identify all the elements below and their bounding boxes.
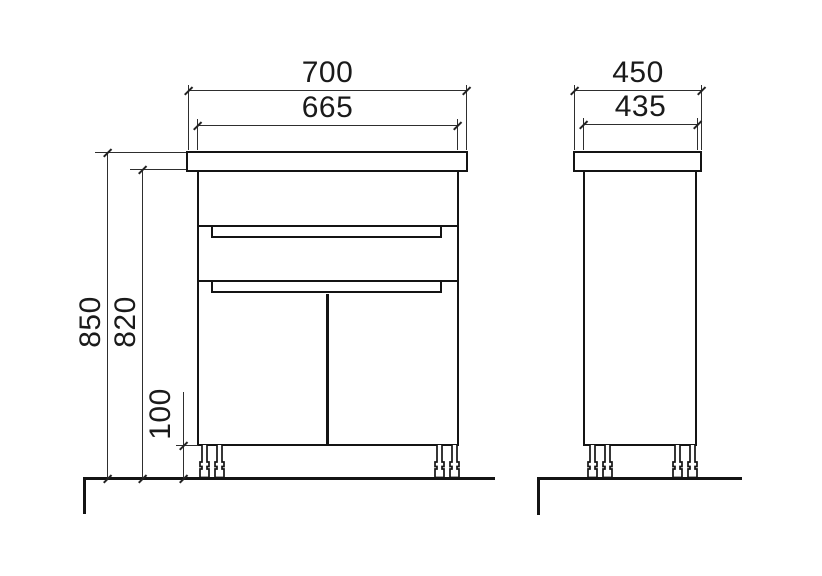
dim-label-height-total: 850 xyxy=(76,277,106,367)
dim-label-plinth-height: 100 xyxy=(146,369,176,459)
extension-line xyxy=(188,85,189,150)
extension-line xyxy=(466,85,467,150)
countertop-front xyxy=(186,151,468,172)
dim-line-850 xyxy=(107,152,108,479)
ground-edge-side xyxy=(537,477,540,515)
dim-label-front-width-top: 700 xyxy=(188,58,467,88)
handle-groove-2 xyxy=(211,280,442,293)
extension-line xyxy=(701,85,702,150)
technical-drawing-canvas: 700 665 450 435 850 820 100 xyxy=(0,0,822,576)
dim-label-front-width-body: 665 xyxy=(197,93,458,123)
leg-side-front xyxy=(587,445,613,479)
handle-groove-1 xyxy=(211,225,442,238)
leg-front-right xyxy=(434,445,460,479)
door-gap-line xyxy=(326,294,329,444)
leg-front-left xyxy=(199,445,225,479)
extension-line xyxy=(130,169,187,170)
leg-side-back xyxy=(672,445,698,479)
dim-line-435 xyxy=(583,124,698,125)
dim-label-side-depth-top: 450 xyxy=(574,58,702,88)
cabinet-body-side xyxy=(583,170,697,446)
extension-line xyxy=(574,85,575,150)
ground-edge-front xyxy=(83,477,86,514)
dim-line-665 xyxy=(197,125,458,126)
extension-line xyxy=(176,445,198,446)
dim-line-100 xyxy=(183,392,184,479)
dim-line-820 xyxy=(142,169,143,479)
ground-line-side xyxy=(537,477,742,480)
dim-label-side-depth-body: 435 xyxy=(583,92,698,122)
countertop-side xyxy=(573,151,702,172)
dim-label-height-under-top: 820 xyxy=(111,277,141,367)
